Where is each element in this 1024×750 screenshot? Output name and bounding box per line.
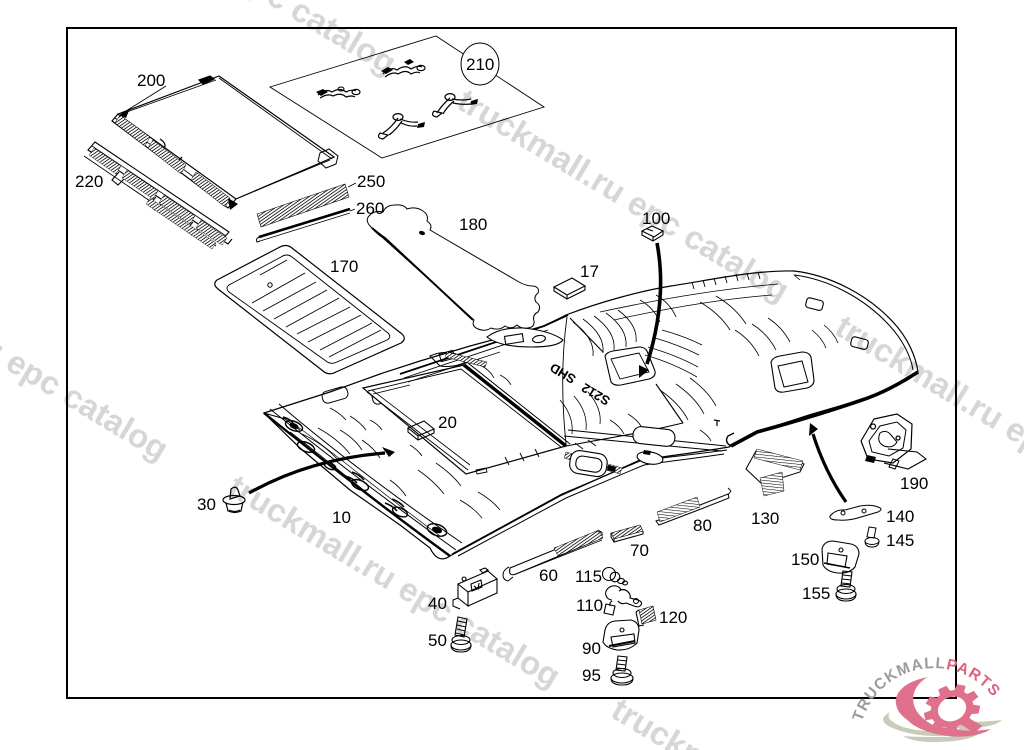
svg-text:180: 180	[459, 215, 487, 234]
svg-text:145: 145	[886, 531, 914, 550]
svg-text:70: 70	[630, 541, 649, 560]
svg-text:95: 95	[582, 666, 601, 685]
svg-text:150: 150	[791, 550, 819, 569]
svg-text:155: 155	[802, 584, 830, 603]
svg-text:170: 170	[330, 257, 358, 276]
svg-text:50: 50	[428, 631, 447, 650]
svg-text:17: 17	[580, 262, 599, 281]
svg-text:250: 250	[357, 172, 385, 191]
svg-text:30: 30	[197, 495, 216, 514]
svg-text:210: 210	[466, 55, 494, 74]
svg-text:110: 110	[576, 596, 603, 615]
svg-text:90: 90	[582, 639, 601, 658]
svg-text:190: 190	[900, 474, 928, 493]
svg-text:80: 80	[693, 516, 712, 535]
svg-text:20: 20	[438, 413, 457, 432]
svg-text:120: 120	[659, 608, 687, 627]
svg-text:115: 115	[575, 567, 602, 586]
svg-text:140: 140	[886, 507, 914, 526]
svg-text:60: 60	[539, 566, 558, 585]
svg-text:220: 220	[75, 172, 103, 191]
svg-text:200: 200	[137, 71, 165, 90]
svg-text:130: 130	[751, 509, 779, 528]
